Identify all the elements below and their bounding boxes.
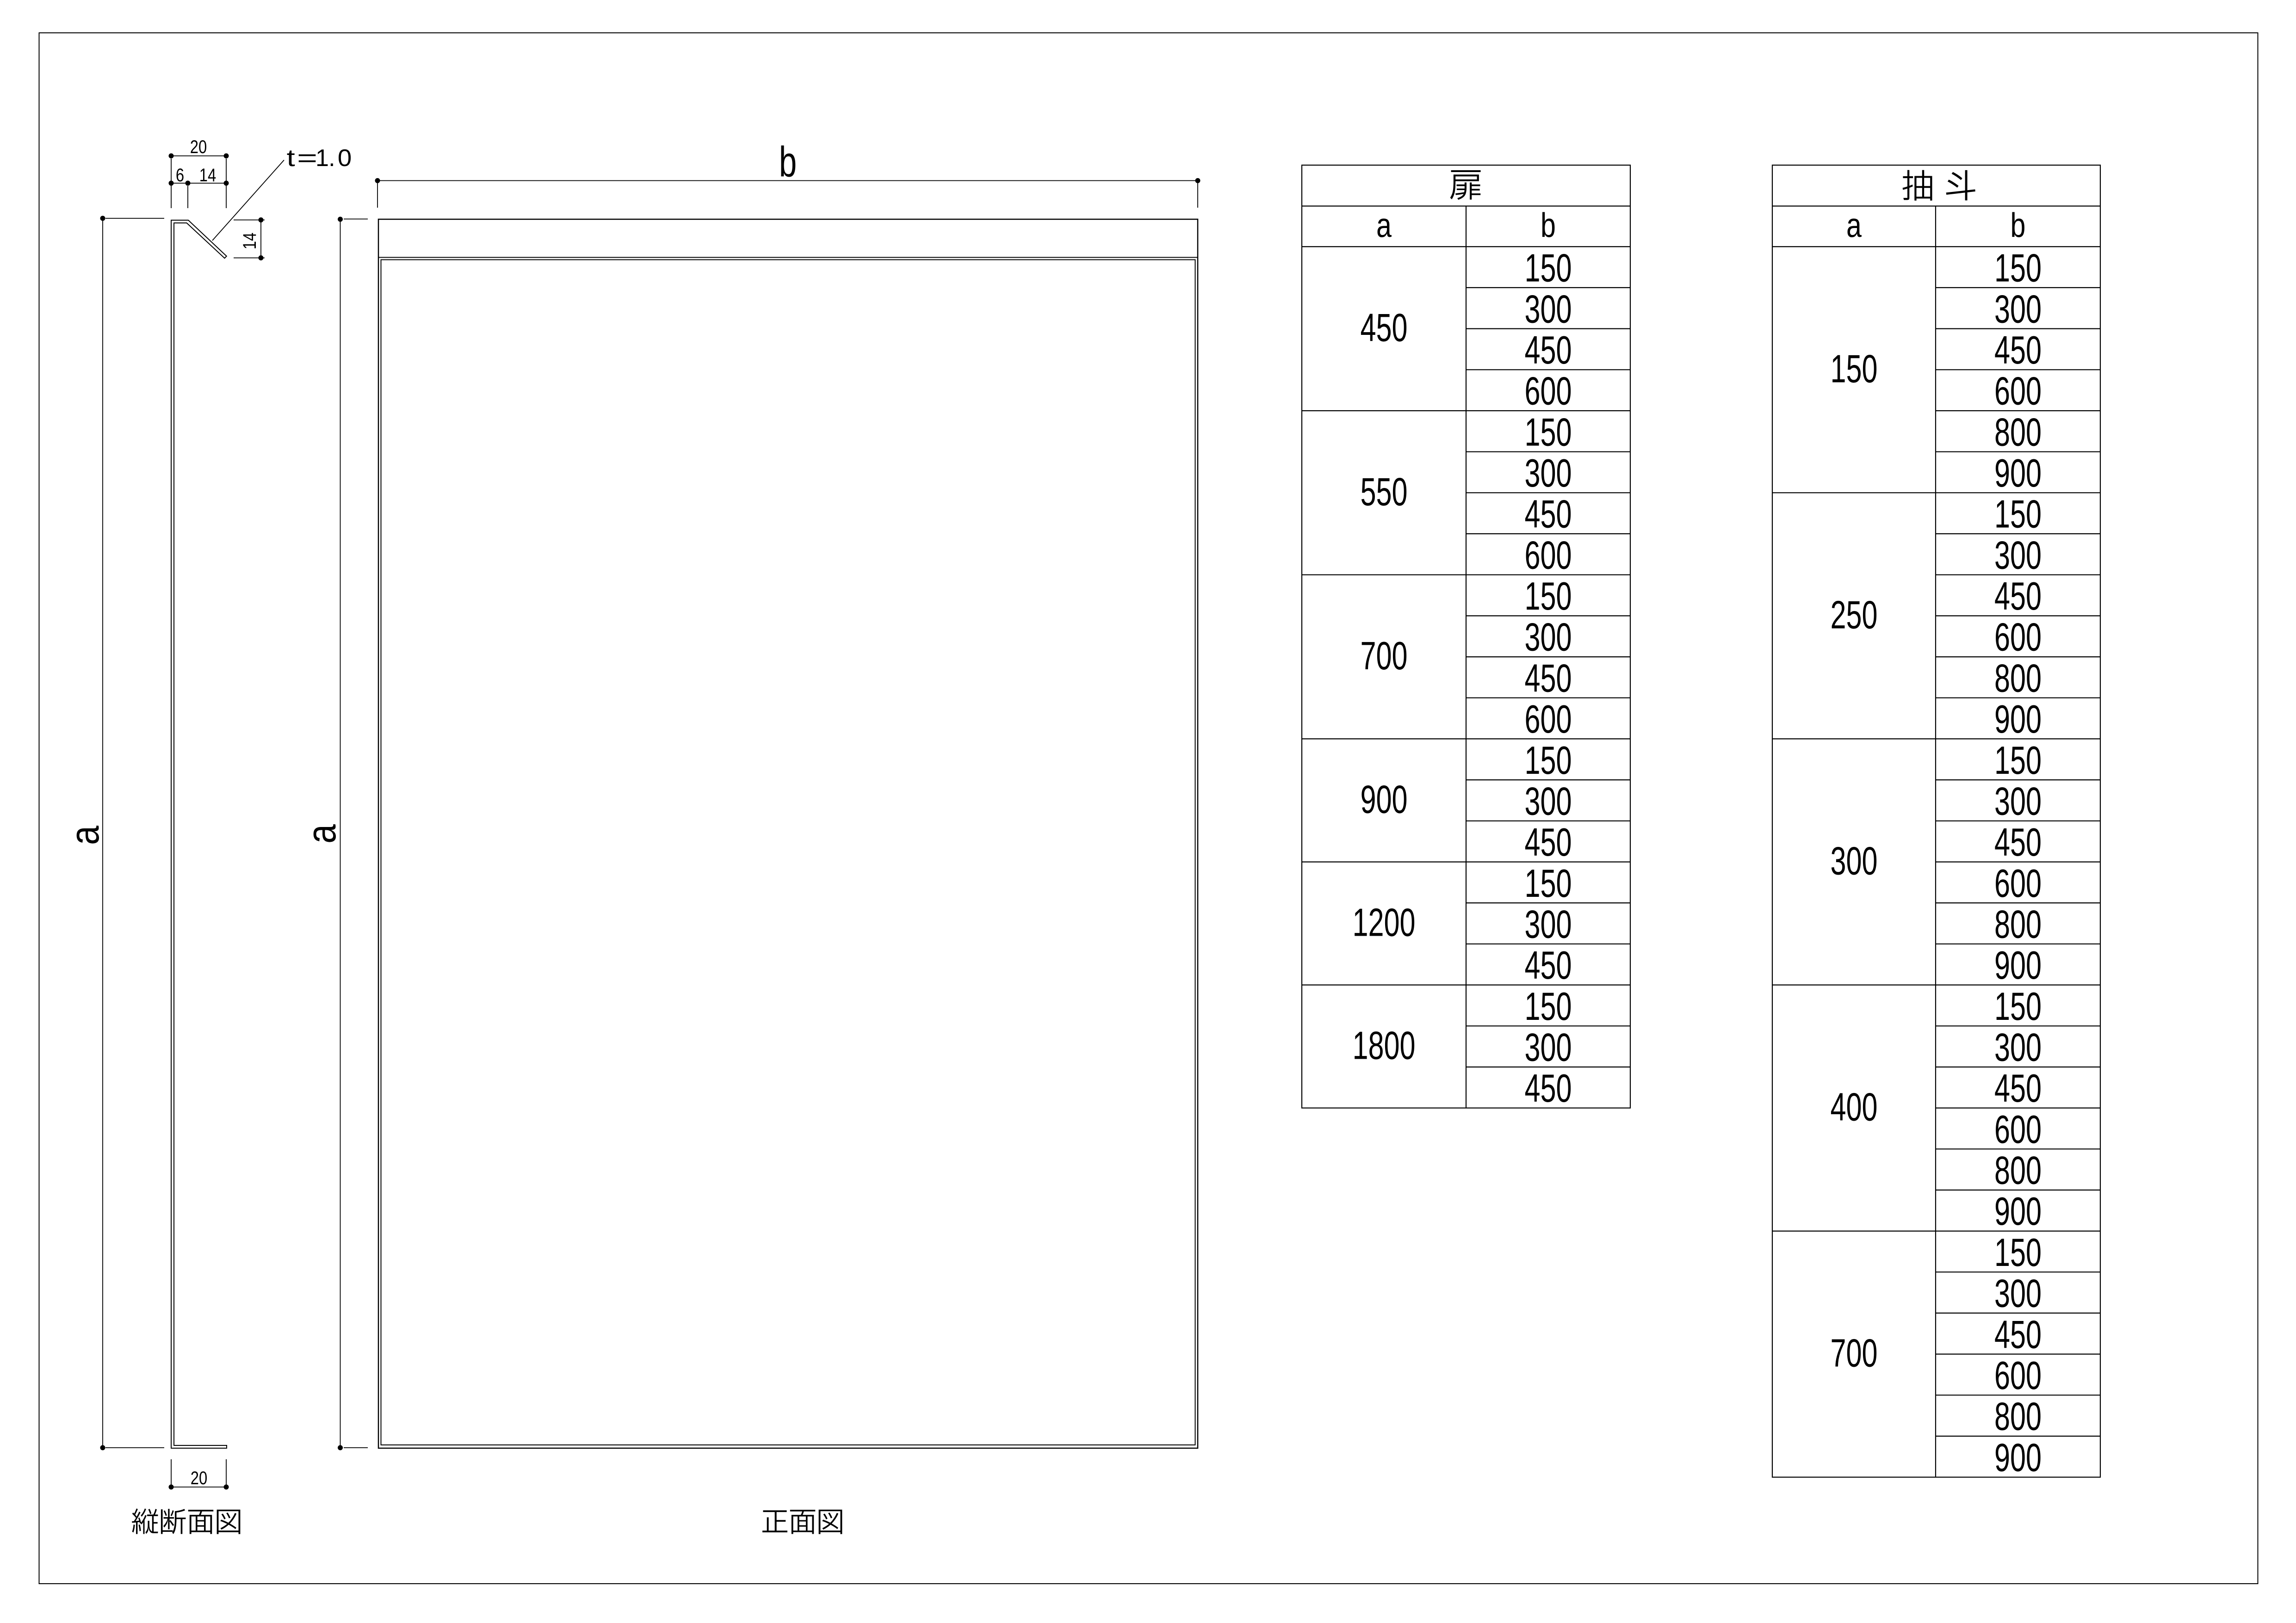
svg-text:450: 450 (1994, 820, 2042, 864)
svg-text:150: 150 (1994, 738, 2042, 782)
svg-text:1: 1 (316, 145, 329, 172)
svg-text:150: 150 (1524, 574, 1572, 618)
svg-text:300: 300 (1524, 287, 1572, 331)
svg-text:250: 250 (1830, 593, 1877, 637)
svg-text:150: 150 (1524, 861, 1572, 905)
svg-text:14: 14 (199, 165, 216, 185)
svg-text:600: 600 (1994, 369, 2042, 413)
svg-text:450: 450 (1994, 1066, 2042, 1110)
svg-text:20: 20 (190, 136, 207, 157)
svg-text:300: 300 (1994, 287, 2042, 331)
svg-text:300: 300 (1524, 1025, 1572, 1069)
svg-text:1200: 1200 (1352, 901, 1415, 944)
svg-text:0: 0 (338, 145, 352, 172)
svg-text:800: 800 (1994, 1395, 2042, 1438)
svg-text:t: t (287, 145, 295, 171)
svg-text:300: 300 (1524, 615, 1572, 659)
svg-text:700: 700 (1360, 634, 1407, 678)
svg-text:450: 450 (1524, 492, 1572, 536)
svg-text:550: 550 (1360, 469, 1407, 513)
svg-text:900: 900 (1994, 1435, 2042, 1479)
svg-text:900: 900 (1360, 778, 1407, 821)
svg-text:a: a (299, 824, 344, 844)
svg-text:b: b (779, 138, 797, 186)
svg-text:14: 14 (239, 233, 260, 249)
svg-text:300: 300 (1524, 451, 1572, 495)
svg-text:450: 450 (1524, 943, 1572, 987)
svg-text:900: 900 (1994, 1189, 2042, 1233)
svg-text:400: 400 (1830, 1085, 1877, 1129)
svg-text:600: 600 (1524, 369, 1572, 413)
svg-text:300: 300 (1994, 779, 2042, 823)
svg-text:600: 600 (1524, 697, 1572, 741)
svg-text:450: 450 (1994, 574, 2042, 618)
svg-text:800: 800 (1994, 1148, 2042, 1192)
svg-text:150: 150 (1830, 346, 1877, 390)
svg-text:150: 150 (1994, 984, 2042, 1028)
svg-text:.: . (328, 145, 335, 172)
svg-text:700: 700 (1830, 1331, 1877, 1375)
svg-text:600: 600 (1994, 615, 2042, 659)
svg-text:450: 450 (1360, 306, 1407, 350)
svg-text:450: 450 (1994, 328, 2042, 372)
svg-text:450: 450 (1524, 820, 1572, 864)
svg-text:900: 900 (1994, 451, 2042, 495)
svg-text:300: 300 (1524, 902, 1572, 946)
svg-text:150: 150 (1524, 246, 1572, 290)
svg-text:600: 600 (1994, 1353, 2042, 1397)
svg-text:1800: 1800 (1352, 1024, 1415, 1068)
svg-text:a: a (1846, 206, 1862, 245)
svg-text:600: 600 (1524, 533, 1572, 577)
svg-text:450: 450 (1524, 1066, 1572, 1110)
svg-text:800: 800 (1994, 902, 2042, 946)
svg-text:20: 20 (191, 1468, 207, 1488)
svg-text:450: 450 (1994, 1312, 2042, 1356)
svg-text:600: 600 (1994, 861, 2042, 905)
svg-text:300: 300 (1994, 1025, 2042, 1069)
svg-text:a: a (62, 826, 107, 845)
svg-text:b: b (2011, 206, 2026, 245)
svg-text:300: 300 (1830, 839, 1877, 883)
svg-text:800: 800 (1994, 410, 2042, 454)
svg-text:150: 150 (1994, 246, 2042, 290)
svg-text:150: 150 (1524, 410, 1572, 454)
svg-text:150: 150 (1994, 492, 2042, 536)
svg-text:6: 6 (176, 165, 184, 185)
svg-text:900: 900 (1994, 697, 2042, 741)
svg-text:b: b (1541, 206, 1556, 245)
svg-text:600: 600 (1994, 1107, 2042, 1151)
svg-text:150: 150 (1524, 984, 1572, 1028)
svg-text:450: 450 (1524, 656, 1572, 700)
svg-text:a: a (1376, 206, 1392, 245)
svg-text:=: = (297, 144, 317, 172)
svg-text:450: 450 (1524, 328, 1572, 372)
svg-text:800: 800 (1994, 656, 2042, 700)
svg-text:300: 300 (1994, 1271, 2042, 1315)
svg-text:300: 300 (1524, 779, 1572, 823)
svg-text:150: 150 (1994, 1230, 2042, 1274)
svg-text:900: 900 (1994, 943, 2042, 987)
svg-text:150: 150 (1524, 738, 1572, 782)
svg-text:300: 300 (1994, 533, 2042, 577)
